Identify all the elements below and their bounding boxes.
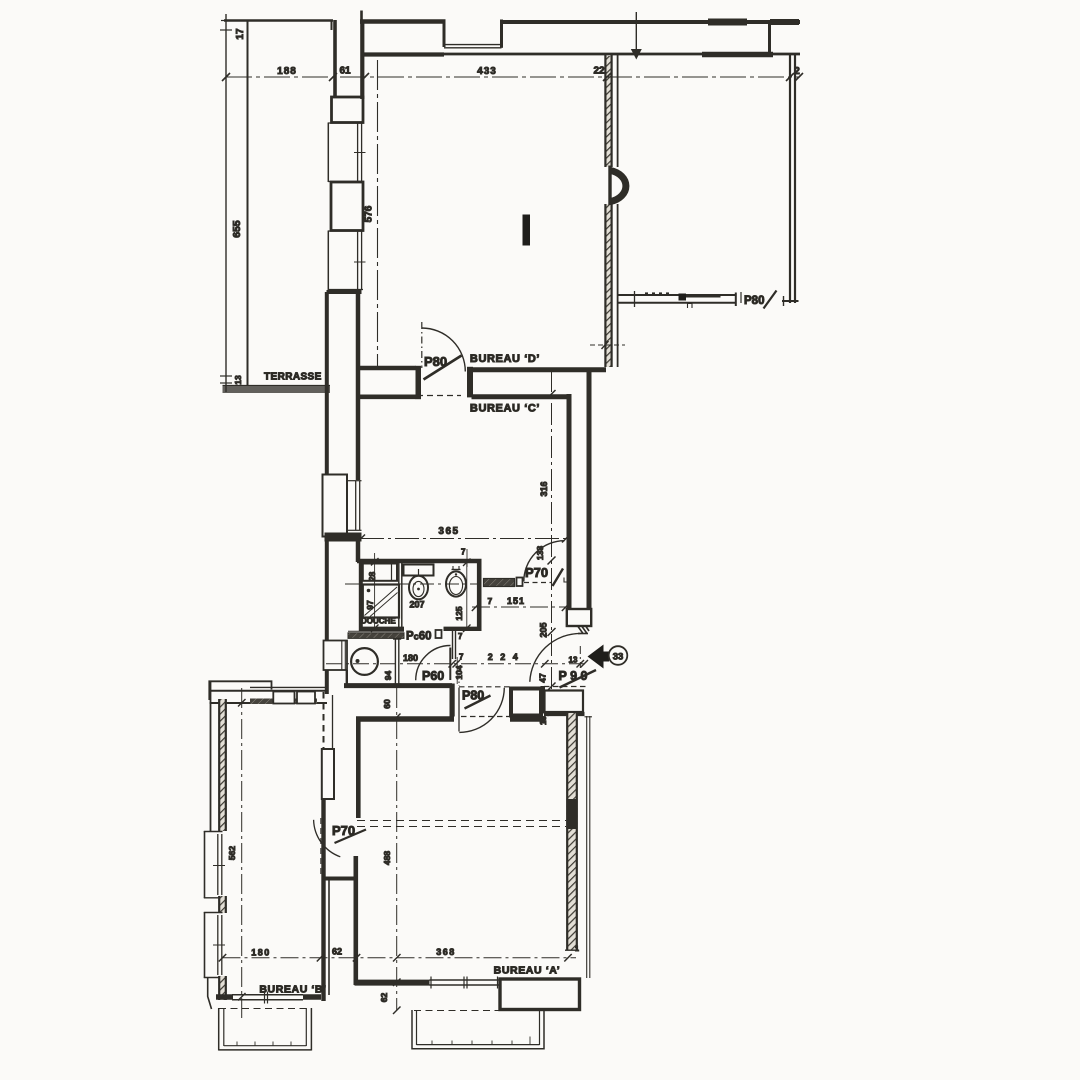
svg-text:TERRASSE: TERRASSE <box>264 372 322 383</box>
svg-text:7: 7 <box>459 653 464 662</box>
svg-text:7: 7 <box>458 632 463 641</box>
svg-text:205: 205 <box>539 622 549 637</box>
svg-text:13: 13 <box>569 656 578 665</box>
svg-text:P60: P60 <box>422 669 444 683</box>
svg-text:DOUCHE: DOUCHE <box>361 617 396 626</box>
svg-text:433: 433 <box>477 66 497 77</box>
svg-text:2 2 4: 2 2 4 <box>488 652 521 662</box>
svg-text:316: 316 <box>539 481 549 496</box>
svg-text:2: 2 <box>794 66 800 77</box>
svg-text:22: 22 <box>593 66 605 77</box>
svg-text:BUREAU ‘A’: BUREAU ‘A’ <box>494 965 561 977</box>
svg-text:62: 62 <box>379 993 389 1003</box>
svg-text:125: 125 <box>454 606 464 620</box>
svg-text:151: 151 <box>507 596 525 606</box>
svg-text:28: 28 <box>367 572 377 582</box>
svg-text:P80: P80 <box>744 295 764 307</box>
svg-text:576: 576 <box>364 205 375 222</box>
svg-text:Pc60: Pc60 <box>406 631 431 643</box>
svg-text:207: 207 <box>409 600 424 610</box>
svg-text:562: 562 <box>227 846 237 860</box>
svg-text:180: 180 <box>251 948 271 958</box>
svg-text:61: 61 <box>339 66 351 77</box>
svg-text:97: 97 <box>365 600 375 610</box>
svg-text:BUREAU ‘D’: BUREAU ‘D’ <box>470 353 540 365</box>
svg-text:180: 180 <box>403 653 418 663</box>
svg-text:60: 60 <box>382 699 392 709</box>
svg-text:368: 368 <box>436 947 456 957</box>
svg-text:488: 488 <box>382 851 392 865</box>
svg-text:BUREAU ‘B’: BUREAU ‘B’ <box>259 984 326 996</box>
svg-text:7: 7 <box>488 596 493 606</box>
svg-text:62: 62 <box>332 947 342 957</box>
svg-text:47: 47 <box>538 673 548 683</box>
svg-text:94: 94 <box>383 671 393 681</box>
svg-text:P80: P80 <box>424 354 447 369</box>
svg-text:188: 188 <box>277 66 297 77</box>
svg-text:1: 1 <box>575 946 579 953</box>
svg-text:365: 365 <box>438 526 459 537</box>
svg-text:33: 33 <box>613 652 624 663</box>
svg-text:BUREAU ‘C’: BUREAU ‘C’ <box>470 403 540 415</box>
svg-text:17: 17 <box>235 28 246 40</box>
svg-text:P70: P70 <box>525 565 548 580</box>
svg-text:13: 13 <box>233 375 243 385</box>
svg-text:655: 655 <box>231 220 243 238</box>
svg-text:7: 7 <box>461 548 466 557</box>
